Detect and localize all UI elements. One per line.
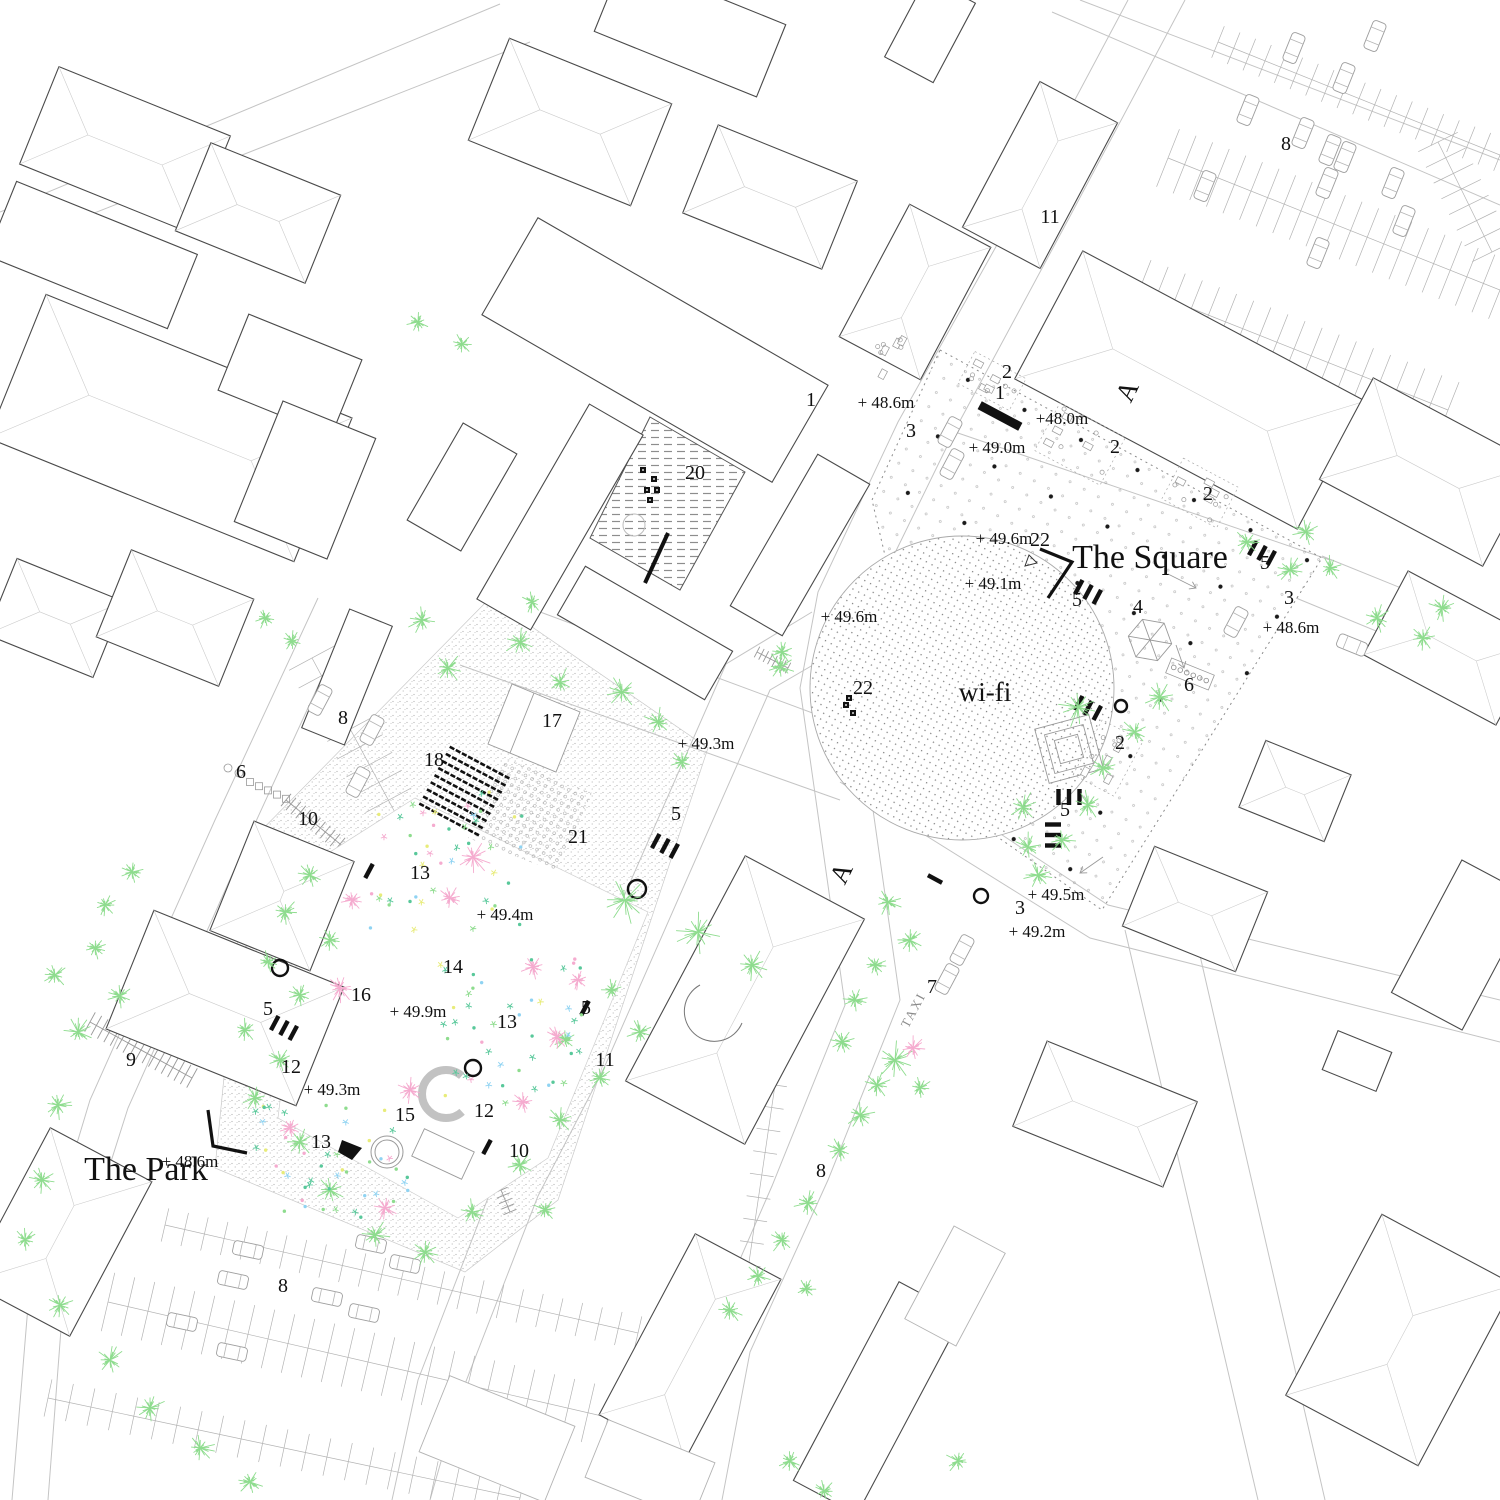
annotation-16: 16 [351, 984, 371, 1006]
annotation-13: 13 [497, 1011, 517, 1033]
annotation-11: 11 [595, 1049, 614, 1071]
flower [513, 815, 516, 818]
annotation-3: 3 [906, 420, 916, 442]
flower [452, 1006, 455, 1009]
annotation-+49.1m: + 49.1m [965, 574, 1022, 593]
annotation-3: 3 [1015, 897, 1025, 919]
annotation-5: 5 [671, 803, 681, 825]
annotation-7: 7 [927, 976, 937, 998]
annotation-8: 8 [1281, 133, 1291, 155]
annotation-14: 14 [443, 956, 463, 978]
flower [283, 1209, 286, 1212]
annotation-10: 10 [509, 1140, 529, 1162]
annotation-2: 2 [1002, 361, 1012, 383]
flower [471, 986, 474, 989]
flower [579, 966, 582, 969]
wifi-zone-label: wi-fi [959, 677, 1011, 707]
flower [479, 810, 482, 813]
annotation-+48.0m: +48.0m [1036, 409, 1089, 428]
flower [480, 981, 483, 984]
square-title: The Square [1072, 539, 1228, 576]
item-22-marker-core [646, 489, 648, 491]
flower [383, 1109, 386, 1112]
flower [324, 1104, 327, 1107]
annotation-5: 5 [263, 998, 273, 1020]
flower [530, 998, 533, 1001]
annotation-+49.6m: + 49.6m [821, 607, 878, 626]
flower [301, 1199, 304, 1202]
annotation-1: 1 [995, 382, 1005, 404]
flower [345, 1170, 348, 1173]
flower [392, 1200, 395, 1203]
flower [274, 1164, 277, 1167]
flower [341, 1168, 344, 1171]
site-plan: 8111+ 48.6m321+ 49.0m+48.0m22+ 49.6m22+ … [0, 0, 1500, 1500]
flower [262, 1106, 265, 1109]
flower [408, 900, 411, 903]
annotation-+49.2m: + 49.2m [1009, 922, 1066, 941]
flower [572, 961, 575, 964]
annotation-2: 2 [1110, 436, 1120, 458]
annotation-5: 5 [1072, 589, 1082, 611]
flower [369, 926, 372, 929]
item-22-marker-core [642, 469, 644, 471]
flower [425, 845, 428, 848]
annotation-+49.6m: + 49.6m [976, 529, 1033, 548]
annotation-6: 6 [236, 761, 246, 783]
annotation-8: 8 [278, 1275, 288, 1297]
flower [446, 1037, 449, 1040]
item-22-marker-core [649, 499, 651, 501]
item-22-marker-core [852, 712, 854, 714]
annotation-12: 12 [474, 1100, 494, 1122]
annotation-20: 20 [685, 462, 705, 484]
item-22-marker-core [848, 697, 850, 699]
annotation-10: 10 [298, 808, 318, 830]
flower [447, 827, 450, 830]
flower [377, 813, 380, 816]
flower [363, 1194, 366, 1197]
flower [303, 1205, 306, 1208]
annotation-+48.6m: + 48.6m [858, 393, 915, 412]
annotation-+49.5m: + 49.5m [1028, 885, 1085, 904]
item-22-marker-core [653, 478, 655, 480]
annotation-8: 8 [816, 1160, 826, 1182]
annotation-+49.3m: + 49.3m [678, 734, 735, 753]
annotation-11: 11 [1040, 206, 1059, 228]
flower [439, 861, 442, 864]
annotation-15: 15 [395, 1104, 415, 1126]
flower [328, 1187, 331, 1190]
annotation-17: 17 [542, 710, 562, 732]
annotation-+49.4m: + 49.4m [477, 905, 534, 924]
flower [567, 1037, 570, 1040]
annotation-8: 8 [338, 707, 348, 729]
annotation-18: 18 [424, 749, 444, 771]
flower [573, 957, 576, 960]
annotation-13: 13 [311, 1131, 331, 1153]
annotation-21: 21 [568, 826, 588, 848]
item-22-marker-core [845, 704, 847, 706]
annotation-1: 1 [806, 389, 816, 411]
annotation-6: 6 [1184, 674, 1194, 696]
flower [487, 791, 490, 794]
annotation-5: 5 [581, 997, 591, 1019]
annotation-9: 9 [126, 1049, 136, 1071]
flower [406, 1189, 409, 1192]
annotation-22: 22 [853, 677, 873, 699]
flower [284, 1136, 287, 1139]
flower [530, 1034, 533, 1037]
annotation-3: 3 [1284, 587, 1294, 609]
flower [320, 1164, 323, 1167]
flower [408, 834, 411, 837]
flower [414, 895, 417, 898]
annotation-5: 5 [1260, 552, 1270, 574]
flower [387, 903, 390, 906]
flower [551, 1080, 554, 1083]
flower [519, 845, 522, 848]
annotation-4: 4 [1133, 596, 1143, 618]
flower [302, 1152, 305, 1155]
annotation-22: 22 [1030, 529, 1050, 551]
flower [414, 852, 417, 855]
flower [264, 1148, 267, 1151]
flower [370, 892, 373, 895]
flower [303, 1186, 306, 1189]
annotation-+49.9m: + 49.9m [390, 1002, 447, 1021]
annotation-12: 12 [281, 1056, 301, 1078]
annotation-2: 2 [1115, 732, 1125, 754]
flower [467, 842, 470, 845]
flower [395, 1167, 398, 1170]
annotation-2: 2 [1203, 483, 1213, 505]
site-plan-svg: 8111+ 48.6m321+ 49.0m+48.0m22+ 49.6m22+ … [0, 0, 1500, 1500]
flower [322, 1208, 325, 1211]
annotation-13: 13 [410, 862, 430, 884]
flower [379, 893, 382, 896]
bench [1045, 822, 1061, 826]
park-title: The Park [84, 1151, 208, 1188]
flower [501, 1084, 504, 1087]
annotation-+48.6m: + 48.6m [1263, 618, 1320, 637]
flower [570, 1052, 573, 1055]
flower [432, 824, 435, 827]
flower [547, 1084, 550, 1087]
flower [368, 1139, 371, 1142]
flower [517, 1069, 520, 1072]
flower [344, 1107, 347, 1110]
flower [518, 1013, 521, 1016]
flower [472, 973, 475, 976]
flower [281, 1171, 284, 1174]
annotation-+49.3m: + 49.3m [304, 1080, 361, 1099]
flower [379, 1157, 382, 1160]
item-22-marker-core [656, 489, 658, 491]
annotation-+49.0m: + 49.0m [969, 438, 1026, 457]
flower [507, 881, 510, 884]
flower [359, 1216, 362, 1219]
flower [406, 1176, 409, 1179]
flower [444, 1094, 447, 1097]
flower [520, 814, 523, 817]
annotation-5: 5 [1060, 799, 1070, 821]
flower [480, 1040, 483, 1043]
flower [530, 958, 533, 961]
flower [472, 1026, 475, 1029]
flower [368, 1160, 371, 1163]
